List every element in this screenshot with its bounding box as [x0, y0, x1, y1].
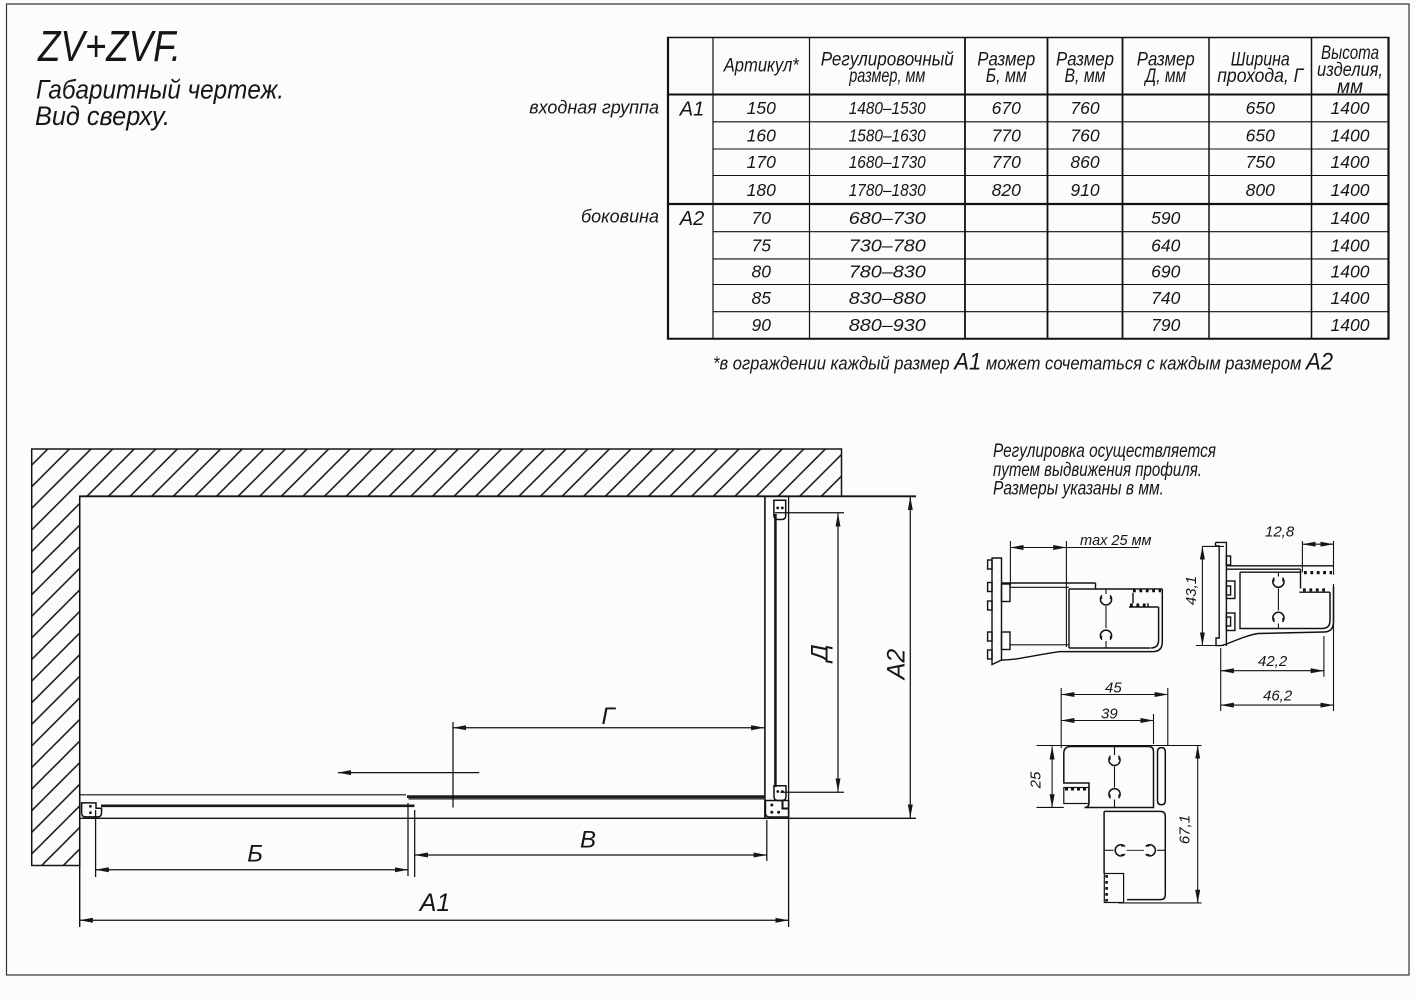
svg-text:80: 80: [752, 262, 772, 282]
svg-text:740: 740: [1151, 288, 1180, 308]
svg-text:880–930: 880–930: [849, 315, 926, 335]
svg-text:Габаритный чертеж.: Габаритный чертеж.: [36, 75, 284, 105]
svg-text:входная группа: входная группа: [529, 98, 659, 118]
svg-text:70: 70: [752, 208, 772, 228]
svg-text:1400: 1400: [1331, 235, 1370, 255]
svg-text:Б, мм: Б, мм: [986, 66, 1027, 87]
svg-text:67,1: 67,1: [1177, 815, 1194, 844]
svg-text:770: 770: [992, 125, 1021, 145]
svg-text:размер, мм: размер, мм: [848, 66, 925, 87]
svg-text:90: 90: [752, 315, 772, 335]
svg-text:43,1: 43,1: [1183, 576, 1200, 605]
svg-text:25: 25: [1028, 771, 1045, 789]
svg-text:*в ограждении каждый размер А1: *в ограждении каждый размер А1 может соч…: [713, 349, 1333, 376]
svg-text:1400: 1400: [1331, 315, 1370, 335]
svg-text:800: 800: [1246, 180, 1275, 200]
svg-text:ZV+ZVF.: ZV+ZVF.: [37, 22, 181, 71]
svg-text:12,8: 12,8: [1265, 524, 1295, 541]
svg-text:39: 39: [1101, 706, 1118, 723]
svg-text:Б: Б: [247, 841, 263, 868]
svg-text:1400: 1400: [1331, 262, 1370, 282]
svg-text:770: 770: [992, 152, 1021, 172]
svg-text:1400: 1400: [1331, 152, 1370, 172]
svg-text:1400: 1400: [1331, 180, 1370, 200]
svg-text:820: 820: [992, 180, 1021, 200]
svg-text:боковина: боковина: [581, 207, 659, 227]
svg-text:1400: 1400: [1331, 98, 1370, 118]
svg-text:670: 670: [992, 98, 1021, 118]
svg-text:1580–1630: 1580–1630: [849, 125, 926, 145]
svg-text:1400: 1400: [1331, 288, 1370, 308]
svg-text:160: 160: [747, 125, 776, 145]
svg-text:мм: мм: [1337, 77, 1363, 98]
svg-text:85: 85: [752, 288, 772, 308]
svg-text:170: 170: [747, 152, 776, 172]
svg-text:860: 860: [1070, 152, 1099, 172]
svg-text:650: 650: [1246, 98, 1275, 118]
svg-text:46,2: 46,2: [1263, 688, 1293, 705]
svg-text:Г: Г: [601, 703, 616, 730]
svg-text:max 25 мм: max 25 мм: [1080, 533, 1152, 549]
svg-text:Д: Д: [807, 644, 834, 664]
svg-text:В: В: [580, 826, 596, 853]
svg-text:180: 180: [747, 180, 776, 200]
svg-text:690: 690: [1151, 262, 1180, 282]
svg-text:Размеры указаны в мм.: Размеры указаны в мм.: [993, 479, 1164, 500]
svg-text:830–880: 830–880: [849, 288, 926, 308]
svg-text:Вид сверху.: Вид сверху.: [35, 101, 170, 131]
svg-text:42,2: 42,2: [1258, 653, 1288, 670]
svg-text:590: 590: [1151, 208, 1180, 228]
svg-text:750: 750: [1246, 152, 1275, 172]
svg-text:760: 760: [1070, 98, 1099, 118]
svg-text:А1: А1: [679, 99, 704, 121]
svg-text:150: 150: [747, 98, 776, 118]
svg-text:790: 790: [1151, 315, 1180, 335]
svg-text:В, мм: В, мм: [1065, 66, 1106, 87]
svg-text:75: 75: [752, 235, 772, 255]
svg-text:Артикул*: Артикул*: [723, 56, 799, 77]
svg-text:прохода, Г: прохода, Г: [1217, 66, 1305, 87]
svg-text:650: 650: [1246, 125, 1275, 145]
svg-text:1400: 1400: [1331, 125, 1370, 145]
svg-text:1780–1830: 1780–1830: [849, 180, 926, 200]
svg-text:640: 640: [1151, 235, 1180, 255]
svg-text:1480–1530: 1480–1530: [849, 98, 926, 118]
svg-text:680–730: 680–730: [849, 208, 926, 228]
svg-text:А1: А1: [418, 889, 451, 917]
svg-text:910: 910: [1070, 180, 1099, 200]
svg-text:А2: А2: [679, 208, 704, 230]
svg-text:760: 760: [1070, 125, 1099, 145]
svg-text:45: 45: [1105, 680, 1122, 697]
svg-text:1400: 1400: [1331, 208, 1370, 228]
svg-text:730–780: 730–780: [849, 235, 926, 255]
svg-text:Д, мм: Д, мм: [1144, 66, 1187, 87]
svg-text:А2: А2: [883, 649, 911, 682]
svg-text:780–830: 780–830: [849, 262, 926, 282]
svg-text:1680–1730: 1680–1730: [849, 152, 926, 172]
